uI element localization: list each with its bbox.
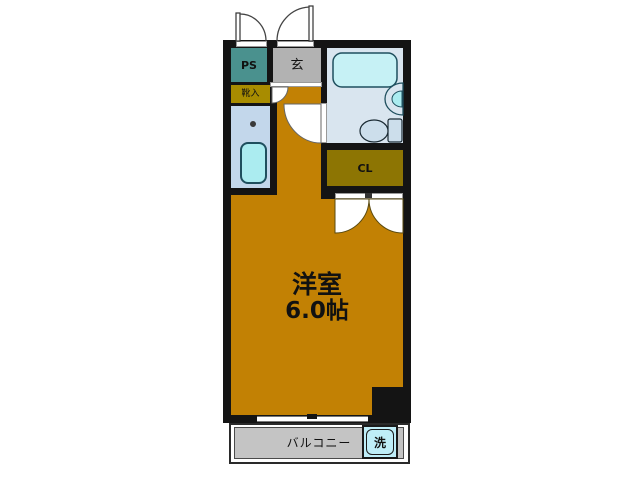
closet-label: CL	[357, 163, 372, 174]
wall-kitchen-hall	[270, 85, 277, 195]
main-room-size-label: 6.0帖	[231, 300, 403, 323]
closet-box: CL	[327, 150, 403, 186]
washing-machine-box: 洗	[362, 425, 398, 459]
main-room-label: 洋室	[231, 272, 403, 297]
kitchen-sink	[240, 142, 267, 184]
ps-door-swing-arc	[240, 14, 266, 41]
floorplan-canvas: PS 玄 靴入 CL バルコニー 洗	[0, 0, 640, 480]
entrance-door-leaf	[309, 6, 313, 41]
wall-left	[223, 40, 231, 423]
wall-kitchen-bottom	[223, 188, 277, 195]
washing-machine-label: 洗	[366, 429, 394, 455]
wall-entrance-bath	[321, 48, 327, 103]
wall-closet-stub	[321, 193, 335, 199]
wall-right	[403, 40, 411, 423]
pipe-space-box: PS	[231, 48, 267, 82]
entrance-step-sill	[270, 82, 322, 87]
wall-ps-entrance	[267, 48, 273, 82]
balcony-label: バルコニー	[287, 437, 352, 449]
shoe-cabinet-label: 靴入	[241, 90, 259, 99]
ps-door-leaf	[236, 13, 240, 41]
bathroom-door-sill	[320, 103, 327, 143]
ps-door-sill	[236, 41, 267, 47]
wall-corner-block	[372, 387, 411, 423]
entrance-door-swing-arc	[277, 7, 309, 41]
closet-door-sill	[335, 193, 403, 199]
entrance-label: 玄	[290, 59, 303, 72]
window-center-tick	[307, 414, 317, 419]
bathroom-floor	[327, 48, 403, 143]
wall-closet-bottom	[327, 186, 403, 193]
pipe-space-label: PS	[241, 60, 257, 71]
entrance-box: 玄	[273, 48, 321, 82]
wall-bath-bottom	[321, 143, 411, 150]
entrance-door-sill	[277, 41, 314, 47]
wall-under-ps	[223, 82, 277, 85]
shoe-cabinet-box: 靴入	[231, 85, 270, 103]
